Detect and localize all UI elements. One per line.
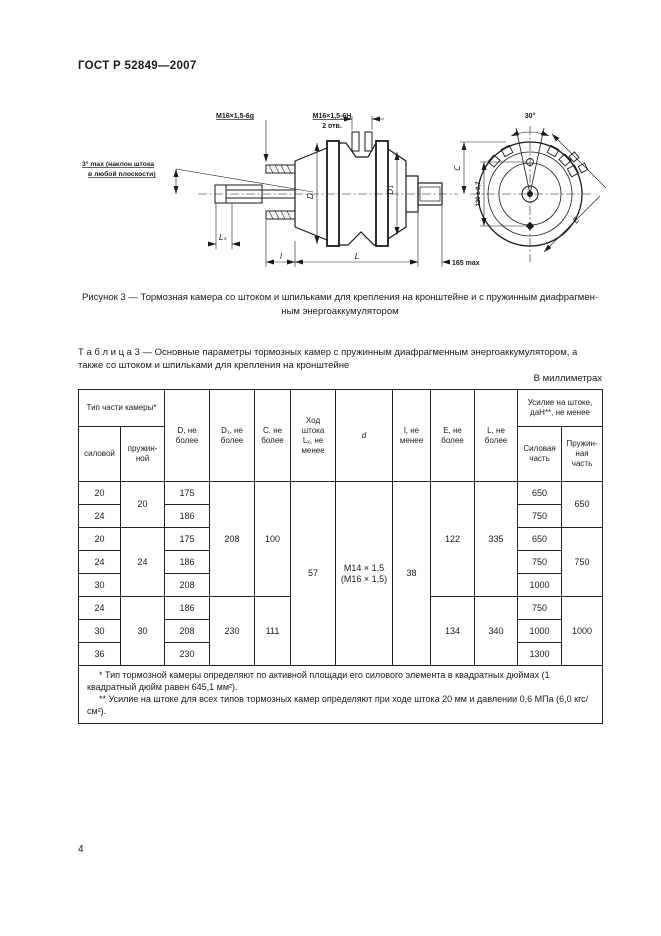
- table-cell: 20: [79, 482, 121, 505]
- table-cell: 335: [475, 482, 518, 597]
- thread-rod-label: М16×1,5-6g: [216, 113, 254, 120]
- table-cell: 30: [121, 597, 165, 666]
- table-cell: 650: [518, 528, 562, 551]
- table-cell: 186: [165, 597, 210, 620]
- table-cell: 186: [165, 551, 210, 574]
- tilt-note-line2: в любой плоскости): [88, 170, 156, 178]
- table-cell: 650: [518, 482, 562, 505]
- column-header-d: d: [336, 390, 393, 482]
- column-header-force-power: Силовая часть: [518, 427, 562, 482]
- parameters-table: Тип части камеры* D, не более D₁, не бол…: [78, 389, 603, 724]
- column-header-spring-part: пружин- ной: [121, 427, 165, 482]
- table-cell: 175: [165, 528, 210, 551]
- document-page: ГОСТ Р 52849—2007: [0, 0, 661, 936]
- table-cell: 111: [255, 597, 291, 666]
- column-header-D1: D₁, не более: [210, 390, 255, 482]
- column-header-stroke: Ход штока Lₓ, не менее: [291, 390, 336, 482]
- table-cell: 100: [255, 482, 291, 597]
- table-cell: 750: [562, 528, 603, 597]
- table-cell: 750: [518, 597, 562, 620]
- table-cell: 208: [165, 620, 210, 643]
- table-cell: 24: [79, 551, 121, 574]
- thread-size-line1: М14 × 1,5: [336, 563, 392, 574]
- table-cell: 24: [79, 597, 121, 620]
- table-cell: 208: [210, 482, 255, 597]
- table-cell: 1000: [562, 597, 603, 666]
- page-number: 4: [78, 844, 84, 855]
- thread-size-line2: (М16 × 1,5): [336, 574, 392, 585]
- column-header-L: L, не более: [475, 390, 518, 482]
- table-cell: 24: [121, 528, 165, 597]
- mounting-studs: [266, 165, 295, 219]
- table-cell: 1000: [518, 620, 562, 643]
- table-cell: 20: [79, 528, 121, 551]
- dim-D-label: D: [306, 193, 315, 199]
- table-cell: 1000: [518, 574, 562, 597]
- table-cell: 30: [79, 574, 121, 597]
- table-cell: 20: [121, 482, 165, 528]
- column-header-type: Тип части камеры*: [79, 390, 165, 427]
- dim-165-label: 165 max: [452, 260, 480, 267]
- table-cell: 122: [431, 482, 475, 597]
- dimension-lines-main: [208, 116, 450, 267]
- thread-holes-label: М16×1,5-6Н: [313, 113, 352, 120]
- figure-caption: Рисунок 3 — Тормозная камера со штоком и…: [78, 291, 602, 319]
- footnote-1: * Тип тормозной камеры определяют по акт…: [87, 669, 594, 693]
- table-cell: 36: [79, 643, 121, 666]
- tilt-note-line1: 3° max (наклон штока: [82, 160, 154, 168]
- column-header-C: С, не более: [255, 390, 291, 482]
- table-cell: 38: [393, 482, 431, 666]
- table-cell: 57: [291, 482, 336, 666]
- table-cell: 186: [165, 505, 210, 528]
- table-header-row-top: Тип части камеры* D, не более D₁, не бол…: [79, 390, 603, 427]
- column-header-D: D, не более: [165, 390, 210, 482]
- holes-count-label: 2 отв.: [322, 123, 342, 130]
- push-rod-clevis: [176, 169, 313, 249]
- figure-drawing: М16×1,5-6g М16×1,5-6Н 2 отв. 3° max (нак…: [80, 106, 615, 288]
- table-cell: 24: [79, 505, 121, 528]
- table-cell: 208: [165, 574, 210, 597]
- footnote-2: ** Усилие на штоке для всех типов тормоз…: [87, 693, 594, 717]
- table-cell: 750: [518, 505, 562, 528]
- dim-120-label: 120 ± 0,7: [476, 181, 482, 207]
- column-header-force: Усилие на штоке, даН**, не менее: [518, 390, 603, 427]
- column-header-l: l, не менее: [393, 390, 431, 482]
- footnotes-row: * Тип тормозной камеры определяют по акт…: [79, 666, 603, 724]
- angle-30-label: 30°: [525, 112, 536, 120]
- table-cell: 175: [165, 482, 210, 505]
- dim-C-label: С: [453, 165, 462, 171]
- table-cell: 340: [475, 597, 518, 666]
- table-cell: 30: [79, 620, 121, 643]
- table-cell: 650: [562, 482, 603, 528]
- table-cell: 134: [431, 597, 475, 666]
- table-cell: 230: [210, 597, 255, 666]
- table-cell-thread: М14 × 1,5 (М16 × 1,5): [336, 482, 393, 666]
- dim-L-label: L: [355, 252, 359, 261]
- dim-D1-label: D₁: [386, 185, 395, 194]
- column-header-force-spring: Пружин- ная часть: [562, 427, 603, 482]
- table-title: Т а б л и ц а 3 — Основные параметры тор…: [78, 346, 602, 372]
- doc-number: ГОСТ Р 52849—2007: [78, 60, 197, 72]
- table-cell: 230: [165, 643, 210, 666]
- table-cell: 1300: [518, 643, 562, 666]
- dim-Lx-label: Lₓ: [219, 233, 227, 242]
- units-label: В миллиметрах: [78, 373, 602, 384]
- column-header-E: Е, не более: [431, 390, 475, 482]
- center-lines: [198, 126, 594, 262]
- table-cell: 750: [518, 551, 562, 574]
- footnotes: * Тип тормозной камеры определяют по акт…: [79, 666, 603, 724]
- column-header-power-part: силовой: [79, 427, 121, 482]
- table-row: 20 20 175 208 100 57 М14 × 1,5 (М16 × 1,…: [79, 482, 603, 505]
- dim-l-label: l: [280, 252, 283, 261]
